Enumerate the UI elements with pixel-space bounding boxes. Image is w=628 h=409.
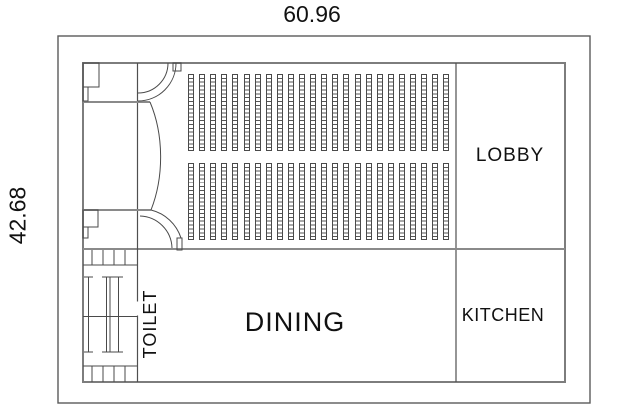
seating-column <box>366 74 372 151</box>
seating-column <box>199 163 205 240</box>
seating-column <box>244 163 250 240</box>
seating-column <box>410 74 416 151</box>
entry-steps <box>83 63 99 238</box>
seating-column <box>377 163 383 240</box>
seating-column <box>266 74 272 151</box>
seating-column <box>421 74 427 151</box>
room-label-dining: DINING <box>240 309 350 336</box>
room-label-toilet: TOILET <box>141 289 163 359</box>
door-swing-bottom-outer-arc <box>151 210 181 238</box>
seating-column <box>366 163 372 240</box>
seating-column <box>432 74 438 151</box>
seating-column <box>288 163 294 240</box>
seating-column <box>277 163 283 240</box>
door-leaf-arc <box>150 102 161 210</box>
seating-column <box>321 163 327 240</box>
seating-column <box>399 163 405 240</box>
seating-column <box>388 163 394 240</box>
seating-column <box>277 74 283 151</box>
entrance-doors <box>138 63 182 250</box>
stair-flight-lines <box>89 277 119 352</box>
seating-column <box>221 163 227 240</box>
seating-column <box>343 74 349 151</box>
seating-column <box>221 74 227 151</box>
seating-column <box>255 74 261 151</box>
seating-column <box>188 163 194 240</box>
seating-column <box>399 74 405 151</box>
seating-column <box>188 74 194 151</box>
seating-column <box>199 74 205 151</box>
room-label-lobby: LOBBY <box>460 146 560 165</box>
seating-column <box>443 74 449 151</box>
seating-column <box>299 74 305 151</box>
door-jamb <box>173 63 181 71</box>
seating-column <box>355 163 361 240</box>
seating-column <box>443 163 449 240</box>
seating-column <box>332 163 338 240</box>
entry-step-rect <box>83 63 99 87</box>
seating-column <box>299 163 305 240</box>
seating-column <box>321 74 327 151</box>
seating-column <box>232 163 238 240</box>
floor-plan-canvas: 60.96 42.68 LOBBY KITCHEN DINING TOILET <box>0 0 628 409</box>
room-label-kitchen: KITCHEN <box>455 306 551 324</box>
seating-column <box>232 74 238 151</box>
seating-column <box>210 74 216 151</box>
seating-column <box>388 74 394 151</box>
dimension-width-label: 60.96 <box>282 3 342 26</box>
door-swing-bottom-inner-arc <box>140 216 172 248</box>
seating-column <box>421 163 427 240</box>
seating-column <box>410 163 416 240</box>
stair-flight-caps <box>84 277 123 352</box>
seating-column <box>377 74 383 151</box>
seating-column <box>210 163 216 240</box>
seating-column <box>343 163 349 240</box>
seating-column <box>310 163 316 240</box>
door-swing-top-outer-arc <box>138 63 176 101</box>
door-swing-top-inner-arc <box>138 63 168 93</box>
entry-step-rect <box>83 210 98 227</box>
seating-column <box>266 163 272 240</box>
dimension-height-label: 42.68 <box>7 172 34 260</box>
seating-column <box>332 74 338 151</box>
seating-column <box>255 163 261 240</box>
seating-column <box>310 74 316 151</box>
seating-column <box>288 74 294 151</box>
seating-column <box>432 163 438 240</box>
seating-column <box>355 74 361 151</box>
seating-column <box>244 74 250 151</box>
stair-block <box>83 250 138 382</box>
